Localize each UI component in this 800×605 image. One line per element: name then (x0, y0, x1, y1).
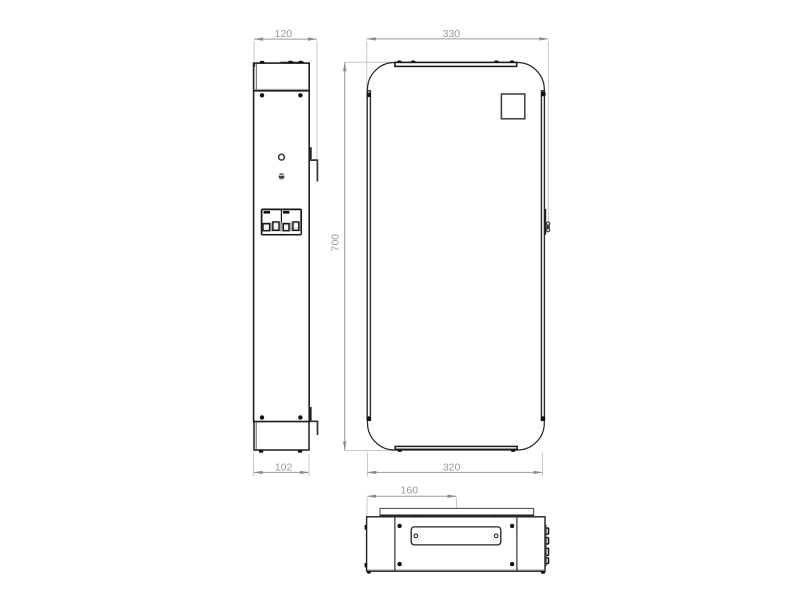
svg-text:700: 700 (330, 234, 342, 252)
svg-text:320: 320 (443, 462, 461, 474)
svg-text:330: 330 (443, 28, 461, 40)
svg-text:160: 160 (401, 485, 419, 497)
svg-text:120: 120 (275, 28, 293, 40)
svg-text:102: 102 (275, 462, 293, 474)
